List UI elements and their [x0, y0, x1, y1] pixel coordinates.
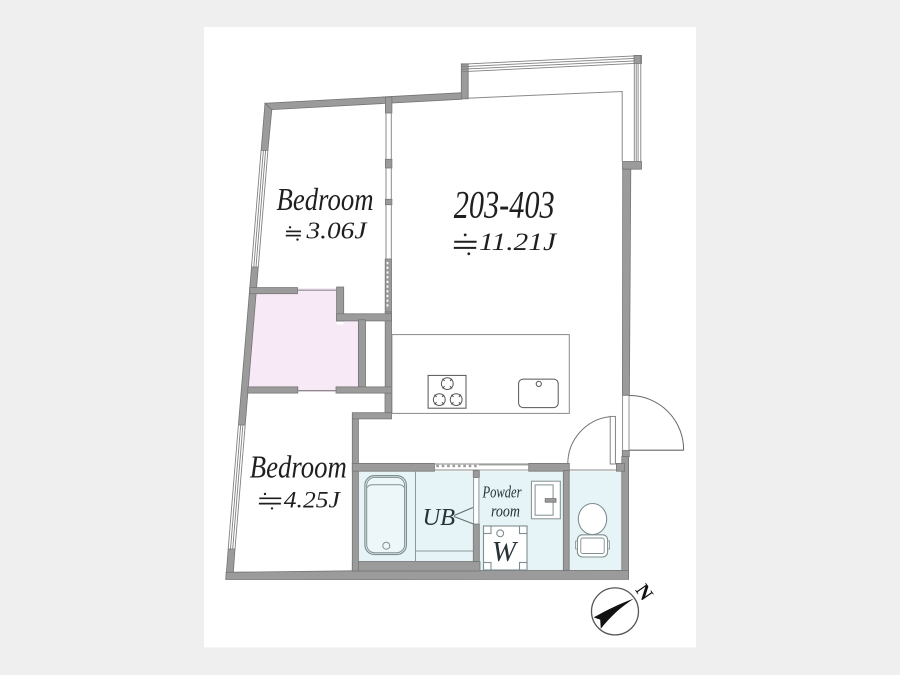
svg-text:room: room	[491, 501, 520, 520]
svg-text:W: W	[492, 536, 519, 568]
svg-text:203-403: 203-403	[454, 185, 555, 227]
svg-text:4.25J: 4.25J	[284, 488, 342, 514]
svg-text:Bedroom: Bedroom	[277, 181, 374, 217]
svg-text:Powder: Powder	[482, 483, 522, 502]
svg-text:UB: UB	[422, 504, 455, 531]
svg-text:Bedroom: Bedroom	[250, 449, 347, 485]
svg-text:3.06J: 3.06J	[305, 218, 367, 245]
svg-text:11.21J: 11.21J	[479, 228, 558, 256]
